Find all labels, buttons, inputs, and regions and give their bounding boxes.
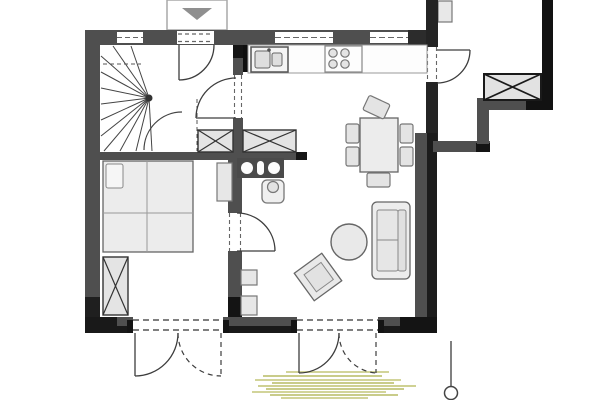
- vanity-basin-right: [268, 162, 280, 174]
- wall-right-lower-black: [427, 133, 437, 317]
- dining-chair: [400, 124, 413, 143]
- kitchen-shaft: [243, 130, 296, 152]
- stove-burner: [329, 49, 337, 57]
- stove-burner: [329, 60, 337, 68]
- sink-basin-large: [255, 51, 270, 68]
- dining-chair: [400, 147, 413, 166]
- stove-burner: [341, 60, 349, 68]
- wall-right-lower: [415, 133, 429, 317]
- sink-basin-small: [272, 53, 282, 66]
- meter-box: [438, 1, 452, 22]
- faucet-icon: [267, 48, 271, 52]
- hall-cabinet: [198, 130, 233, 152]
- sideboard: [241, 270, 257, 285]
- stove-burner: [341, 49, 349, 57]
- wardrobe: [103, 257, 128, 315]
- wall-bottom-left-corner: [85, 317, 117, 333]
- dining-chair: [367, 173, 390, 187]
- wall-bottom-right-corner: [400, 317, 437, 333]
- coffee-table: [331, 224, 367, 260]
- downpipe-circle: [445, 387, 458, 400]
- sofa-backrest: [398, 210, 406, 271]
- toilet-flush: [268, 182, 279, 193]
- door-jamb: [223, 320, 229, 333]
- floor-plan-drawing: [0, 0, 600, 400]
- vanity-basin-left: [241, 162, 253, 174]
- stair-newel-post: [146, 95, 153, 102]
- door-jamb: [291, 320, 297, 333]
- bedroom-door-gap: [228, 213, 242, 251]
- annex-window: [484, 74, 541, 100]
- dining-chair: [346, 147, 359, 166]
- sideboard: [241, 296, 257, 315]
- wall-hall-kitchen-top-dark: [233, 45, 243, 58]
- dining-table: [360, 118, 398, 172]
- dresser: [217, 163, 232, 201]
- wall-hall-bedroom-cap: [296, 152, 307, 160]
- dining-chair: [346, 124, 359, 143]
- annex-wall-right: [542, 0, 553, 110]
- wall-left: [85, 30, 100, 333]
- floor-plan-page: [0, 0, 600, 400]
- vanity-divider: [257, 161, 264, 175]
- door-jamb: [378, 320, 384, 333]
- bed-pillow: [106, 164, 123, 188]
- annex-wall-h1-dark: [476, 143, 490, 152]
- door-jamb: [127, 320, 133, 333]
- wall-bedroom-living-bottom-dark: [228, 297, 242, 317]
